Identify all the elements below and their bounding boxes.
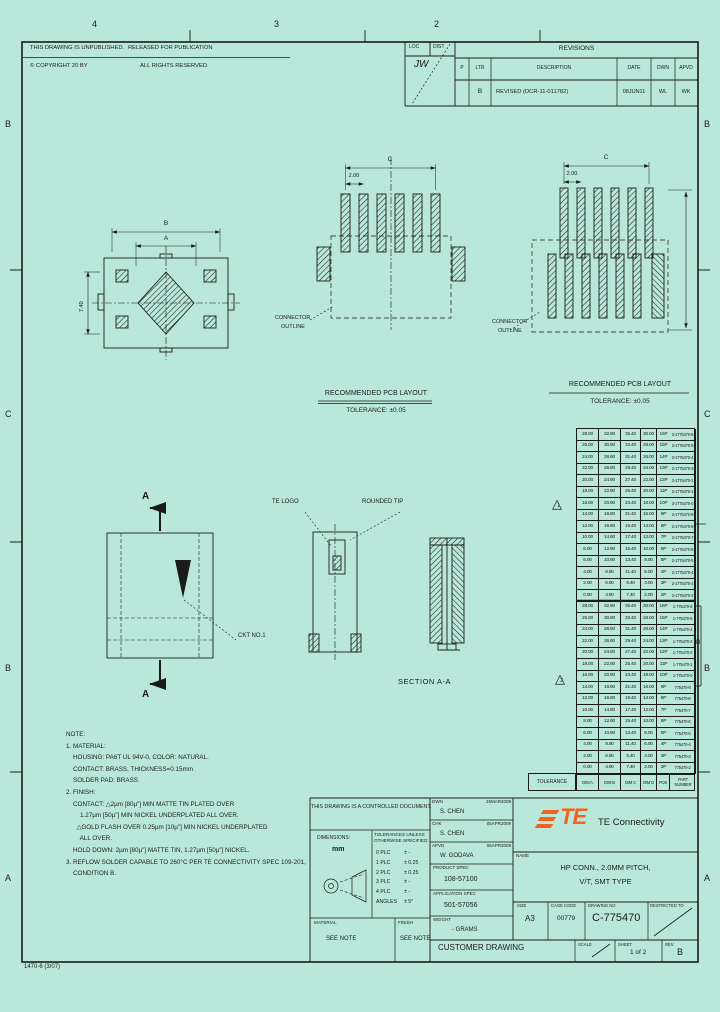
- dim-c-cell: 7.40: [621, 590, 641, 602]
- units-label: mm: [332, 846, 344, 853]
- dim-d-cell: 22.00: [641, 648, 657, 660]
- notes-block: NOTE: 1. MATERIAL: HOUSING: PA6T UL 94V-…: [66, 729, 306, 880]
- dim-d-cell: 26.00: [641, 625, 657, 637]
- brand-name: TE Connectivity: [598, 818, 665, 828]
- part-number-cell: 2-1775470-5: [670, 556, 696, 568]
- dim-a-cell: 26.00: [577, 441, 599, 453]
- dim-d-cell: 14.00: [641, 521, 657, 533]
- zone-letter: B: [704, 120, 710, 129]
- dim-b-cell: 26.90: [599, 636, 621, 648]
- dim-d-cell: 10.00: [641, 717, 657, 729]
- positions-cell: 5P: [657, 728, 670, 740]
- loc-label: LOC: [409, 45, 419, 50]
- pcb-layout-tolerance-mid: TOLERANCE: ±0.05: [310, 408, 442, 415]
- dim-b-cell: 18.90: [599, 682, 621, 694]
- positions-header: POS: [657, 774, 670, 790]
- dim-c-header: DIM C: [621, 774, 641, 790]
- signature-label: APVD: [432, 844, 444, 849]
- part-name-line1: HP CONN., 2.0MM PITCH,: [513, 864, 698, 872]
- part-number-cell: 3-1775470-3: [670, 464, 696, 476]
- positions-cell: 5P: [657, 556, 670, 568]
- te-logo-bar: [535, 824, 553, 828]
- dim-c-cell: 35.40: [621, 429, 641, 441]
- part-number-cell: 3-1775470-2: [670, 475, 696, 487]
- dim-b-cell: 10.90: [599, 728, 621, 740]
- dim-c-cell: 19.40: [621, 521, 641, 533]
- name-label: NAME: [516, 854, 529, 859]
- document-type: CUSTOMER DRAWING: [438, 944, 524, 952]
- dim-b-cell: 16.90: [599, 694, 621, 706]
- dim-b-cell: 24.90: [599, 648, 621, 660]
- dim-label-span-mid: C: [388, 157, 393, 164]
- dim-a-cell: 8.00: [577, 544, 599, 556]
- dim-a-cell: 14.00: [577, 682, 599, 694]
- part-name-line2: V/T, SMT TYPE: [513, 878, 698, 886]
- note-line: 1. MATERIAL:: [66, 741, 306, 753]
- cage-code-value: 00779: [557, 916, 575, 923]
- positions-cell: 8P: [657, 694, 670, 706]
- drawing-sheet: 4 3 2 B C B A B C B A 1470-6 (3/07) THIS…: [0, 0, 720, 1012]
- dim-label-b: B: [164, 221, 168, 228]
- dim-label-span-right: C: [604, 155, 609, 162]
- part-number-cell: 1-775470-1: [670, 659, 696, 671]
- top-view-linework: [84, 228, 240, 360]
- material-label: MATERIAL: [314, 921, 337, 926]
- pcb-layout-mid-linework: [310, 158, 465, 404]
- positions-cell: 3P: [657, 751, 670, 763]
- front-view-linework: [107, 508, 236, 684]
- part-number-cell: 2-1775470-7: [670, 533, 696, 545]
- connector-outline-label: CONNECTOR: [275, 316, 310, 322]
- note-line: HOUSING: PA6T UL 94V-0, COLOR: NATURAL.: [66, 752, 306, 764]
- dim-c-cell: 21.40: [621, 510, 641, 522]
- dim-d-cell: 4.00: [641, 579, 657, 591]
- revisions-col-desc: DESCRIPTION: [537, 66, 571, 71]
- dim-c-cell: 33.40: [621, 613, 641, 625]
- dim-d-cell: 24.00: [641, 636, 657, 648]
- positions-cell: 6P: [657, 717, 670, 729]
- connector-outline-label: OUTLINE: [281, 325, 305, 331]
- tolerance-value: ± 5°: [404, 900, 413, 910]
- released-notice: RELEASED FOR PUBLICATION: [128, 46, 213, 52]
- dim-label-pitch-right: 2.00: [567, 172, 578, 178]
- positions-cell: 12P: [657, 475, 670, 487]
- dim-b-cell: 16.90: [599, 521, 621, 533]
- revision-row-ltr: B: [478, 89, 482, 96]
- pcb-layout-title-mid: RECOMMENDED PCB LAYOUT: [310, 390, 442, 397]
- signature-date: 26MAR2009: [486, 800, 511, 805]
- parts-table: 28.00 32.90 35.40 30.00 16P 3-1775470-6 …: [576, 428, 695, 775]
- te-logo-bar: [538, 817, 556, 821]
- dim-c-cell: 25.40: [621, 487, 641, 499]
- part-number-cell: 775470-8: [670, 694, 696, 706]
- dim-b-cell: 28.90: [599, 452, 621, 464]
- signature-name: S. CHEN: [440, 831, 464, 837]
- dim-b-cell: 6.90: [599, 751, 621, 763]
- product-spec-label: PRODUCT SPEC: [433, 866, 469, 871]
- dim-d-cell: 28.00: [641, 441, 657, 453]
- dim-a-cell: 26.00: [577, 613, 599, 625]
- part-number-cell: 1-775470-5: [670, 613, 696, 625]
- dim-a-cell: 18.00: [577, 659, 599, 671]
- revision-mark: B: [696, 640, 700, 647]
- positions-cell: 7P: [657, 533, 670, 545]
- dim-b-cell: 6.90: [599, 579, 621, 591]
- part-number-cell: 2-1775470-8: [670, 521, 696, 533]
- note-line: 3. REFLOW SOLDER CAPABLE TO 260°C PER TE…: [66, 857, 306, 869]
- unpublished-notice: THIS DRAWING IS UNPUBLISHED.: [30, 46, 124, 52]
- controlled-document-notice: THIS DRAWING IS A CONTROLLED DOCUMENT.: [311, 805, 429, 810]
- dim-b-cell: 8.90: [599, 740, 621, 752]
- part-number-cell: 1-775470-3: [670, 636, 696, 648]
- dim-c-cell: 11.40: [621, 567, 641, 579]
- signature-label: DWN: [432, 800, 443, 805]
- dim-a-cell: 6.00: [577, 728, 599, 740]
- part-number-cell: 1-775470-6: [670, 602, 696, 614]
- dim-c-cell: 29.40: [621, 636, 641, 648]
- dim-a-cell: 6.00: [577, 556, 599, 568]
- dim-d-cell: 8.00: [641, 728, 657, 740]
- dim-a-cell: 14.00: [577, 510, 599, 522]
- part-number-cell: 2-1775470-6: [670, 544, 696, 556]
- dim-a-cell: 10.00: [577, 705, 599, 717]
- dim-b-cell: 28.90: [599, 625, 621, 637]
- dim-c-cell: 29.40: [621, 464, 641, 476]
- note-line: SOLDER PAD: BRASS: [66, 775, 306, 787]
- note-line: NOTE:: [66, 729, 306, 741]
- dim-c-cell: 33.40: [621, 441, 641, 453]
- positions-cell: 4P: [657, 740, 670, 752]
- dim-d-cell: 22.00: [641, 475, 657, 487]
- dim-d-cell: 16.00: [641, 682, 657, 694]
- dim-d-cell: 18.00: [641, 498, 657, 510]
- note-line: △GOLD FLASH OVER 0.25µm [10µ"] MIN NICKE…: [66, 822, 306, 834]
- dim-d-cell: 30.00: [641, 429, 657, 441]
- revision-row-apvd: WK: [682, 90, 691, 96]
- dim-d-cell: 8.00: [641, 556, 657, 568]
- dim-c-cell: 17.40: [621, 705, 641, 717]
- dim-b-cell: 10.90: [599, 556, 621, 568]
- note-line: 2. FINISH:: [66, 787, 306, 799]
- dim-c-cell: 27.40: [621, 475, 641, 487]
- dim-a-cell: 2.00: [577, 751, 599, 763]
- dim-d-header: DIM D: [641, 774, 657, 790]
- revisions-col-date: DATE: [628, 66, 641, 71]
- dim-d-cell: 14.00: [641, 694, 657, 706]
- zone-number: 2: [434, 20, 439, 29]
- revision-row-date: 08JUN11: [623, 90, 646, 96]
- dim-a-header: DIM A: [577, 774, 599, 790]
- dim-d-cell: 18.00: [641, 671, 657, 683]
- positions-cell: 7P: [657, 705, 670, 717]
- revision-row-desc: REVISED (DCR-11-011782): [496, 90, 568, 96]
- dim-a-cell: 0.00: [577, 590, 599, 602]
- dim-b-cell: 14.90: [599, 533, 621, 545]
- drawing-no-label: DRAWING NO: [588, 904, 616, 908]
- positions-cell: 16P: [657, 429, 670, 441]
- revision-row-dwn: WL: [659, 90, 667, 96]
- dim-c-cell: 13.40: [621, 556, 641, 568]
- dim-b-cell: 4.90: [599, 590, 621, 602]
- dim-b-cell: 22.90: [599, 487, 621, 499]
- positions-cell: 10P: [657, 498, 670, 510]
- positions-cell: 8P: [657, 521, 670, 533]
- dim-a-cell: 24.00: [577, 625, 599, 637]
- dim-a-cell: 12.00: [577, 521, 599, 533]
- drawing-no-value: C-775470: [592, 913, 640, 924]
- part-number-cell: 775470-3: [670, 751, 696, 763]
- cage-code-label: CAGE CODE: [551, 904, 576, 908]
- positions-cell: 3P: [657, 579, 670, 591]
- dim-d-cell: 12.00: [641, 533, 657, 545]
- dim-d-cell: 12.00: [641, 705, 657, 717]
- dim-c-cell: 11.40: [621, 740, 641, 752]
- dim-b-cell: 26.90: [599, 464, 621, 476]
- dim-b-cell: 12.90: [599, 544, 621, 556]
- dim-d-cell: 6.00: [641, 740, 657, 752]
- dim-a-cell: 16.00: [577, 671, 599, 683]
- dim-d-cell: 24.00: [641, 464, 657, 476]
- side-view-linework: [305, 512, 400, 660]
- connector-outline-label: OUTLINE: [498, 329, 522, 335]
- part-number-cell: 2-1775470-4: [670, 567, 696, 579]
- dim-a-cell: 8.00: [577, 717, 599, 729]
- positions-cell: 9P: [657, 510, 670, 522]
- positions-cell: 6P: [657, 544, 670, 556]
- dim-a-cell: 4.00: [577, 567, 599, 579]
- material-value: SEE NOTE: [326, 936, 356, 942]
- dim-a-cell: 20.00: [577, 648, 599, 660]
- dim-b-cell: 18.90: [599, 510, 621, 522]
- dim-label-a: A: [164, 236, 168, 243]
- dim-b-cell: 32.90: [599, 429, 621, 441]
- dist-value: JW: [414, 60, 428, 70]
- positions-cell: 15P: [657, 441, 670, 453]
- tolerances-header: OTHERWISE SPECIFIED:: [374, 839, 429, 844]
- part-number-cell: 3-1775470-4: [670, 452, 696, 464]
- positions-cell: 15P: [657, 613, 670, 625]
- part-number-cell: 775470-4: [670, 740, 696, 752]
- note-flag-1: △ 1: [552, 497, 566, 511]
- application-spec-value: 501-57056: [444, 902, 477, 909]
- rights-notice: ALL RIGHTS RESERVED.: [140, 64, 209, 70]
- part-number-cell: 3-1775470-0: [670, 498, 696, 510]
- zone-letter: B: [5, 120, 11, 129]
- dim-label-height: 7.40: [80, 301, 86, 312]
- zone-number: 4: [92, 20, 97, 29]
- positions-cell: 4P: [657, 567, 670, 579]
- dim-d-cell: 2.00: [641, 590, 657, 602]
- note-line: 1.27µm [50µ"] MIN NICKEL UNDERPLATED ALL…: [66, 810, 306, 822]
- sheet-value: 1 of 2: [630, 950, 646, 957]
- signature-row: DWN S. CHEN 26MAR2009: [430, 798, 513, 820]
- sheet-label: SHEET: [618, 943, 632, 947]
- dim-c-cell: 31.40: [621, 452, 641, 464]
- zone-letter: C: [5, 410, 12, 419]
- dim-b-cell: 32.90: [599, 602, 621, 614]
- dim-d-cell: 10.00: [641, 544, 657, 556]
- dim-c-cell: 25.40: [621, 659, 641, 671]
- connector-outline-label: CONNECTOR: [492, 320, 527, 326]
- te-logo-callout: TE LOGO: [272, 499, 299, 505]
- pcb-layout-tolerance-right: TOLERANCE: ±0.05: [544, 399, 696, 406]
- dim-a-cell: 12.00: [577, 694, 599, 706]
- tolerance-label: ANGLES: [376, 900, 404, 910]
- dim-b-cell: 24.90: [599, 475, 621, 487]
- form-number: 1470-6 (3/07): [24, 964, 60, 970]
- part-number-cell: 775470-9: [670, 682, 696, 694]
- dim-c-cell: 31.40: [621, 625, 641, 637]
- note-line: ALL OVER.: [66, 833, 306, 845]
- dim-a-cell: 22.00: [577, 636, 599, 648]
- positions-cell: 14P: [657, 452, 670, 464]
- rev-value: B: [677, 948, 683, 957]
- dim-b-cell: 30.90: [599, 613, 621, 625]
- size-value: A3: [525, 915, 535, 923]
- dim-d-cell: 30.00: [641, 602, 657, 614]
- tolerance-list: 0 PLC ± - 1 PLC ± 0.25 2 PLC ± 0.25 3 PL…: [376, 851, 418, 910]
- rev-label: REV: [665, 943, 674, 947]
- part-number-cell: 2-1775470-9: [670, 510, 696, 522]
- part-number-cell: 1-775470-2: [670, 648, 696, 660]
- dim-c-cell: 13.40: [621, 728, 641, 740]
- positions-cell: 12P: [657, 648, 670, 660]
- positions-cell: 16P: [657, 602, 670, 614]
- finish-label: FINISH: [398, 921, 413, 926]
- note-flag-2: △ 2: [555, 672, 569, 686]
- dim-d-cell: 28.00: [641, 613, 657, 625]
- part-number-cell: 775470-6: [670, 717, 696, 729]
- revisions-title: REVISIONS: [455, 46, 698, 53]
- dim-d-cell: 6.00: [641, 567, 657, 579]
- note-line: CONTACT: △2µm [80µ"] MIN MATTE TIN PLATE…: [66, 799, 306, 811]
- dim-b-cell: 22.90: [599, 659, 621, 671]
- tolerances-header: TOLERANCES UNLESS: [374, 833, 425, 838]
- positions-cell: 2P: [657, 590, 670, 602]
- pcb-layout-title-right: RECOMMENDED PCB LAYOUT: [544, 381, 696, 388]
- weight-label: WEIGHT: [433, 918, 451, 923]
- positions-cell: 13P: [657, 464, 670, 476]
- dim-b-cell: 12.90: [599, 717, 621, 729]
- parts-table-header: DIM A DIM B DIM C DIM D POS PART NUMBER: [576, 773, 695, 791]
- part-number-cell: 1-775470-4: [670, 625, 696, 637]
- dim-d-cell: 26.00: [641, 452, 657, 464]
- dim-b-cell: 14.90: [599, 705, 621, 717]
- signature-rows: DWN S. CHEN 26MAR2009 CHK S. CHEN 05APR2…: [430, 798, 513, 864]
- dim-c-cell: 15.40: [621, 717, 641, 729]
- te-logo-bar: [541, 810, 559, 814]
- part-number-cell: 775470-5: [670, 728, 696, 740]
- copyright-notice: © COPYRIGHT 20 BY: [30, 64, 88, 70]
- positions-cell: 10P: [657, 671, 670, 683]
- dim-b-cell: 30.90: [599, 441, 621, 453]
- ckt-no-callout: CKT NO.1: [238, 633, 266, 639]
- signature-row: CHK S. CHEN 05APR2009: [430, 820, 513, 842]
- positions-cell: 14P: [657, 625, 670, 637]
- part-number-cell: 1-775470-0: [670, 671, 696, 683]
- part-number-header: PART NUMBER: [670, 774, 696, 790]
- revisions-col-apvd: APVD: [679, 66, 693, 71]
- signature-row: APVD W. GODAVA 06APR2009: [430, 842, 513, 864]
- positions-cell: 11P: [657, 659, 670, 671]
- dim-b-header: DIM B: [599, 774, 621, 790]
- dim-a-cell: 22.00: [577, 464, 599, 476]
- note-line: HOLD DOWN: 2µm [80µ"] MATTE TIN, 1.27µm …: [66, 845, 306, 857]
- dim-a-cell: 28.00: [577, 429, 599, 441]
- section-view-linework: [430, 538, 464, 650]
- zone-number: 3: [274, 20, 279, 29]
- part-number-cell: 775470-7: [670, 705, 696, 717]
- rounded-tip-callout: ROUNDED TIP: [362, 499, 403, 505]
- section-arrow-label-top: A: [142, 492, 149, 502]
- revisions-col-p: P: [460, 66, 463, 71]
- positions-cell: 9P: [657, 682, 670, 694]
- dim-d-cell: 20.00: [641, 659, 657, 671]
- dim-c-cell: 17.40: [621, 533, 641, 545]
- dim-c-cell: 35.40: [621, 602, 641, 614]
- part-number-cell: 2-1775470-2: [670, 590, 696, 602]
- product-spec-value: 108-57100: [444, 876, 477, 883]
- scale-label: SCALE: [578, 943, 592, 947]
- dim-c-cell: 9.40: [621, 579, 641, 591]
- dim-c-cell: 15.40: [621, 544, 641, 556]
- dim-a-cell: 18.00: [577, 487, 599, 499]
- part-number-cell: 3-1775470-1: [670, 487, 696, 499]
- dim-b-cell: 20.90: [599, 671, 621, 683]
- dim-a-cell: 2.00: [577, 579, 599, 591]
- te-logo-letters: TE: [560, 806, 586, 828]
- dim-c-cell: 23.40: [621, 498, 641, 510]
- revisions-col-ltr: LTR: [475, 66, 484, 71]
- part-number-cell: 2-1775470-3: [670, 579, 696, 591]
- dim-c-cell: 9.40: [621, 751, 641, 763]
- revisions-col-dwn: DWN: [657, 66, 669, 71]
- zone-letter: A: [5, 874, 11, 883]
- tolerance-row: ANGLES ± 5°: [376, 900, 418, 910]
- dim-b-cell: 20.90: [599, 498, 621, 510]
- dim-c-cell: 27.40: [621, 648, 641, 660]
- dim-a-cell: 28.00: [577, 602, 599, 614]
- dim-d-cell: 16.00: [641, 510, 657, 522]
- section-arrow-label-bottom: A: [142, 690, 149, 700]
- dim-a-cell: 20.00: [577, 475, 599, 487]
- dim-c-cell: 19.40: [621, 694, 641, 706]
- signature-label: CHK: [432, 822, 442, 827]
- dim-a-cell: 24.00: [577, 452, 599, 464]
- positions-cell: 11P: [657, 487, 670, 499]
- zone-letter: B: [704, 664, 710, 673]
- finish-value: SEE NOTE: [400, 936, 430, 942]
- part-number-cell: 3-1775470-6: [670, 429, 696, 441]
- dim-a-cell: 16.00: [577, 498, 599, 510]
- tolerance-cell: TOLERANCE: [528, 773, 576, 791]
- dim-d-cell: 4.00: [641, 751, 657, 763]
- dim-c-cell: 23.40: [621, 671, 641, 683]
- zone-letter: B: [5, 664, 11, 673]
- signature-date: 06APR2009: [487, 844, 511, 849]
- note-line: CONDITION B.: [66, 868, 306, 880]
- dim-d-cell: 20.00: [641, 487, 657, 499]
- dim-a-cell: 4.00: [577, 740, 599, 752]
- zone-letter: A: [704, 874, 710, 883]
- restricted-to-label: RESTRICTED TO: [650, 904, 684, 908]
- dimensions-label: DIMENSIONS:: [317, 836, 350, 841]
- pcb-layout-right-linework: [510, 162, 692, 393]
- dim-a-cell: 10.00: [577, 533, 599, 545]
- zone-letter: C: [704, 410, 711, 419]
- part-number-cell: 3-1775470-5: [670, 441, 696, 453]
- dim-b-cell: 8.90: [599, 567, 621, 579]
